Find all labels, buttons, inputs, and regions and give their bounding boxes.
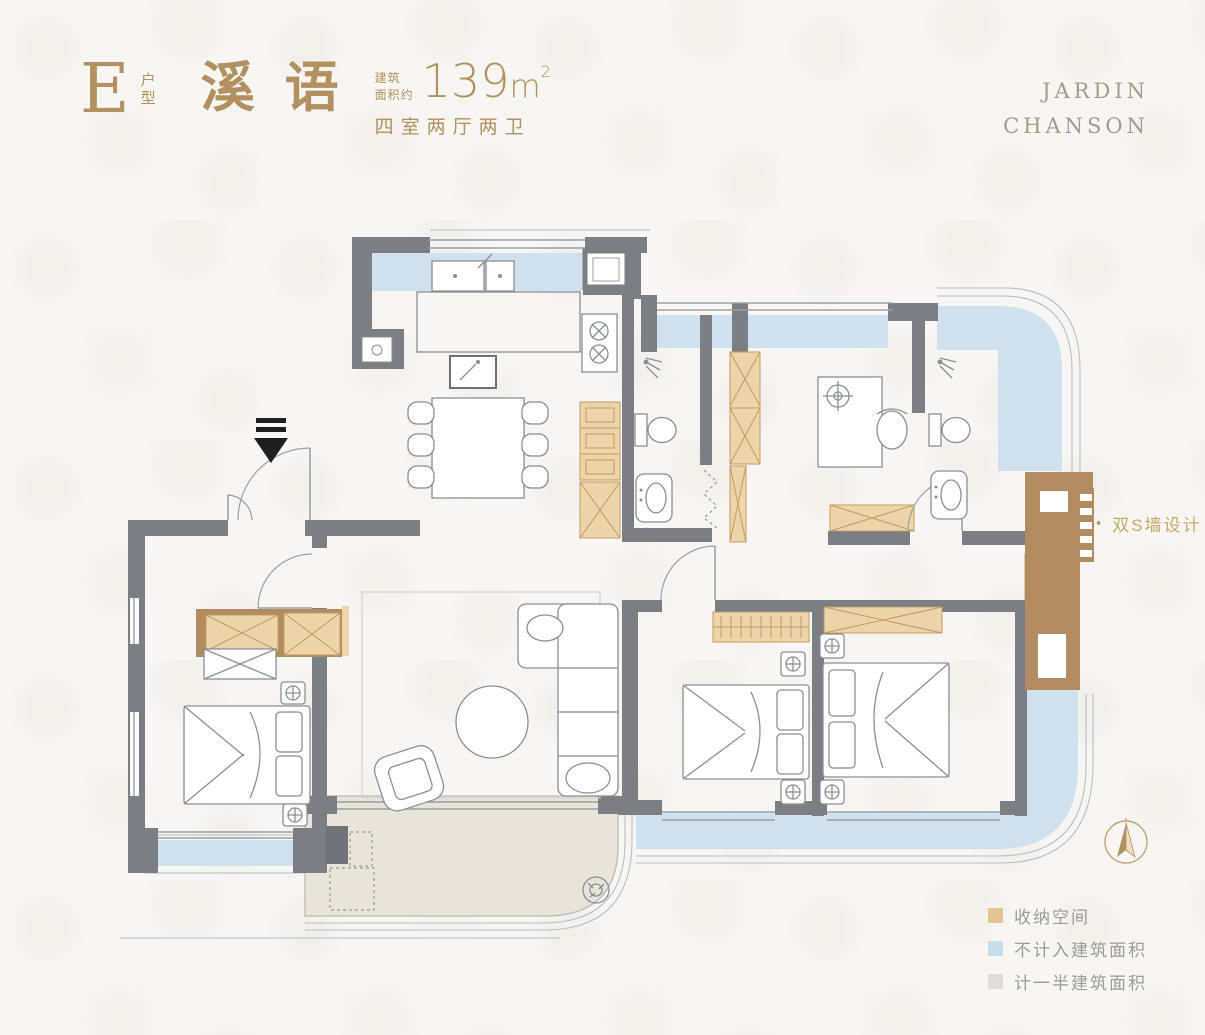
legend-swatch-excluded-icon [988,941,1003,956]
living-room [342,592,618,815]
wall-annotation: • 双S墙设计 [1096,511,1202,536]
legend: 收纳空间 不计入建筑面积 计一半建筑面积 [988,904,1147,1003]
floor-plan [0,0,1205,1035]
legend-label-half: 计一半建筑面积 [1014,969,1147,994]
terrace-half-area [120,796,632,938]
legend-item-excluded-area: 不计入建筑面积 [988,937,1147,959]
bullet-icon: • [1096,515,1103,532]
entrance-arrow-icon [254,418,288,463]
bathroom-central [635,358,676,522]
bedroom-b [820,634,949,804]
legend-label-excluded: 不计入建筑面积 [1014,936,1147,961]
legend-item-storage: 收纳空间 [988,904,1147,926]
bedroom-left [184,682,310,826]
double-s-wall [1025,472,1094,690]
legend-swatch-storage-icon [988,908,1003,923]
wall-annotation-label: 双S墙设计 [1112,511,1201,536]
study-room [818,377,907,467]
bathroom-master [929,358,970,519]
compass-icon [1105,818,1147,863]
bedroom-a [683,652,809,804]
legend-item-half-area: 计一半建筑面积 [988,970,1147,992]
legend-swatch-half-icon [988,974,1003,989]
legend-label-storage: 收纳空间 [1014,903,1090,928]
floorplan-page: { "header": { "unit_letter": "E", "unit_… [0,0,1205,1035]
